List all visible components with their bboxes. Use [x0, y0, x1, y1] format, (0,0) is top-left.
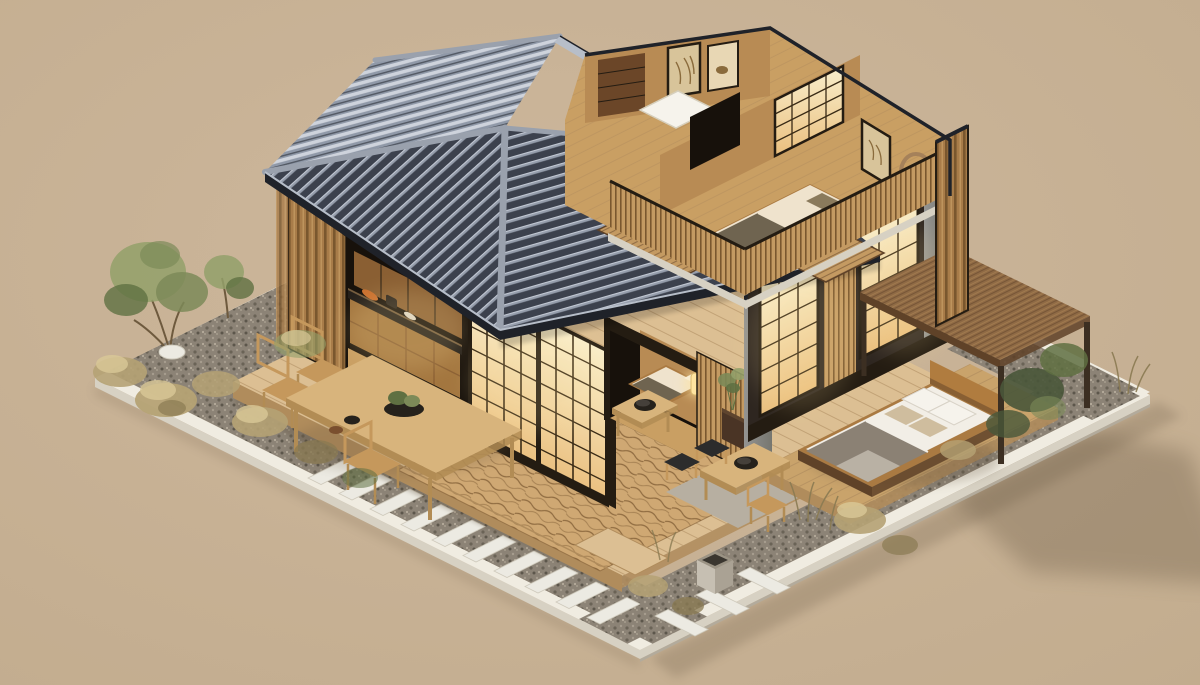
table-bowl-2	[329, 426, 343, 434]
planter-box	[697, 551, 733, 594]
right-slat-wall	[936, 126, 968, 326]
table-bowl-1	[344, 416, 360, 425]
study-art-frame	[668, 43, 700, 97]
isometric-house-scene	[0, 0, 1200, 685]
white-garden-stone	[159, 345, 185, 359]
render-stage: Isometric 3D rendering of a modern Japan…	[0, 0, 1200, 685]
study-shelf	[708, 41, 738, 91]
